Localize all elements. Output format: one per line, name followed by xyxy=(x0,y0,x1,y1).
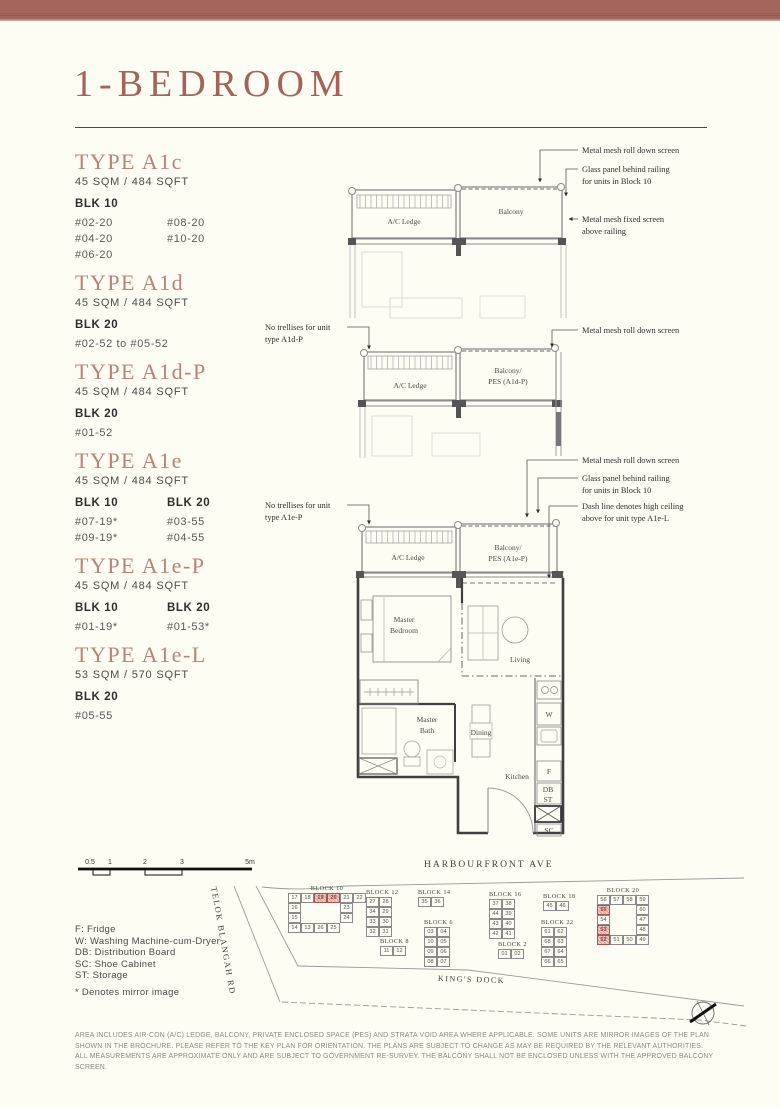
room-label-ac-ledge: A/C Ledge xyxy=(391,553,425,562)
sitemap-block-label: BLOCK 6 xyxy=(424,919,450,926)
sitemap-row: 171819202122 xyxy=(288,893,366,903)
sitemap-unit: 26 xyxy=(314,923,327,933)
sitemap-row: 5348 xyxy=(597,925,649,935)
sitemap-unit: 32 xyxy=(366,927,379,937)
sitemap-row: 4546 xyxy=(543,901,569,911)
room-label-dining: Dining xyxy=(471,728,492,737)
sitemap-unit: 35 xyxy=(418,897,431,907)
sitemap-unit: 60 xyxy=(636,905,649,915)
sitemap-unit: 51 xyxy=(610,935,623,945)
sitemap-unit: 63 xyxy=(554,937,567,947)
sitemap-row: 3231 xyxy=(366,927,392,937)
sitemap-unit: 50 xyxy=(623,935,636,945)
mirror-image-note: * Denotes mirror image xyxy=(75,987,179,998)
sitemap-unit: 28 xyxy=(379,897,392,907)
sitemap-unit: 64 xyxy=(554,947,567,957)
sitemap-block-label: BLOCK 22 xyxy=(541,919,567,926)
sitemap-unit: 46 xyxy=(556,901,569,911)
legend: F: FridgeW: Washing Machine-cum-DryerDB:… xyxy=(75,924,220,982)
room-label-master-bath-2: Bath xyxy=(420,726,434,735)
sitemap-row: 0807 xyxy=(424,957,450,967)
sitemap-unit: 23 xyxy=(340,903,353,913)
sitemap-unit: 65 xyxy=(554,957,567,967)
sitemap-block-label: BLOCK 16 xyxy=(489,891,515,898)
legend-item: F: Fridge xyxy=(75,924,220,936)
annotation-glass-panel-2: for units in Block 10 xyxy=(582,177,651,186)
label-fridge: F xyxy=(547,767,551,776)
road-label-harbourfront-ave: HARBOURFRONT AVE xyxy=(424,860,554,870)
room-label-balcony-pes: Balcony/ xyxy=(494,366,522,375)
sitemap-unit: 39 xyxy=(502,909,515,919)
sitemap-unit: 14 xyxy=(288,923,301,933)
sitemap-row: 3536 xyxy=(418,897,444,907)
sitemap-block-18: BLOCK 184546 xyxy=(543,893,569,911)
sitemap-unit: 58 xyxy=(623,895,636,905)
sitemap-unit: 45 xyxy=(543,901,556,911)
sitemap-block-22: BLOCK 226162686367646665 xyxy=(541,919,567,967)
room-label-balcony-pes-2: PES (A1d-P) xyxy=(488,377,528,386)
sitemap-unit: 62 xyxy=(554,927,567,937)
sitemap-unit: 20 xyxy=(327,893,340,903)
sitemap-block-2: BLOCK 20102 xyxy=(498,941,524,959)
sitemap-unit: 34 xyxy=(366,907,379,917)
floor-plan-a1c: A/C Ledge Balcony Metal mesh roll down s… xyxy=(348,146,680,318)
sitemap-row: 5560 xyxy=(597,905,649,915)
sitemap-unit: 04 xyxy=(437,927,450,937)
sitemap-unit: 49 xyxy=(636,935,649,945)
annotation-no-trellises: No trellises for unit xyxy=(265,501,331,510)
sitemap-unit: 31 xyxy=(379,927,392,937)
room-label-master-bedroom-2: Bedroom xyxy=(390,626,418,635)
annotation-roll-down-screen: Metal mesh roll down screen xyxy=(582,146,680,155)
sitemap-unit: 57 xyxy=(610,895,623,905)
sitemap-unit: 53 xyxy=(597,925,610,935)
sitemap-row: 2728 xyxy=(366,897,392,907)
sitemap-unit: 15 xyxy=(288,913,301,923)
sitemap-unit: 11 xyxy=(380,946,393,956)
scale-bar: 0.5 1 2 3 5m xyxy=(78,859,255,875)
sitemap-block-label: BLOCK 12 xyxy=(366,889,392,896)
legend-item: W: Washing Machine-cum-Dryer xyxy=(75,936,220,948)
sitemap-unit: 61 xyxy=(541,927,554,937)
sitemap-unit: 59 xyxy=(636,895,649,905)
sitemap-unit: 43 xyxy=(489,919,502,929)
sitemap-unit: 30 xyxy=(379,917,392,927)
sitemap-unit: 48 xyxy=(636,925,649,935)
sitemap-block-12: BLOCK 122728342933303231 xyxy=(366,889,392,937)
annotation-no-trellises-2: type A1d-P xyxy=(265,335,303,344)
sitemap-unit: 54 xyxy=(597,915,610,925)
label-sc: SC xyxy=(544,826,553,835)
sitemap-row: 1524 xyxy=(288,913,366,923)
sitemap-block-label: BLOCK 20 xyxy=(597,887,649,894)
floor-plan-a1e: A/C Ledge Balcony/ PES (A1e-P) Master Be… xyxy=(265,456,684,836)
sitemap-block-14: BLOCK 143536 xyxy=(418,889,444,907)
room-label-living: Living xyxy=(510,655,530,664)
sitemap-unit: 22 xyxy=(353,893,366,903)
sitemap-unit: 03 xyxy=(424,927,437,937)
scale-tick-5m: 5m xyxy=(245,859,255,866)
room-label-balcony-pes-2: PES (A1e-P) xyxy=(489,554,528,563)
sitemap-unit: 01 xyxy=(498,949,511,959)
sitemap-row: 52515049 xyxy=(597,935,649,945)
sitemap-unit: 29 xyxy=(379,907,392,917)
label-washer: W xyxy=(545,710,553,719)
sitemap-unit: 36 xyxy=(431,897,444,907)
sitemap-unit: 24 xyxy=(340,913,353,923)
sitemap-unit: 07 xyxy=(437,957,450,967)
room-label-balcony: Balcony xyxy=(499,207,524,216)
annotation-roll-down-screen: Metal mesh roll down screen xyxy=(582,326,680,335)
annotation-glass-panel-2: for units in Block 10 xyxy=(582,486,651,495)
sitemap-row: 4241 xyxy=(489,929,515,939)
annotation-high-ceiling: Dash line denotes high ceiling xyxy=(582,502,684,511)
sitemap-unit: 05 xyxy=(437,937,450,947)
sitemap-unit: 10 xyxy=(424,937,437,947)
room-label-balcony-pes: Balcony/ xyxy=(494,543,522,552)
annotation-fixed-screen-2: above railing xyxy=(582,227,627,236)
sitemap-unit: 47 xyxy=(636,915,649,925)
sitemap-row: 3429 xyxy=(366,907,392,917)
sitemap-block-label: BLOCK 2 xyxy=(498,941,524,948)
sitemap-unit: 40 xyxy=(502,919,515,929)
sitemap-row: 0906 xyxy=(424,947,450,957)
sitemap-row: 0102 xyxy=(498,949,524,959)
legend-item: DB: Distribution Board xyxy=(75,947,220,959)
scale-tick-05: 0.5 xyxy=(85,859,95,866)
label-st: ST xyxy=(544,795,553,804)
sitemap-unit: 25 xyxy=(327,923,340,933)
brochure-page: 1-BEDROOM TYPE A1c45 SQM / 484 SQFTBLK 1… xyxy=(0,0,780,1107)
sitemap-block-16: BLOCK 163738443943404241 xyxy=(489,891,515,939)
sitemap-block-label: BLOCK 14 xyxy=(418,889,444,896)
sitemap-row: 6764 xyxy=(541,947,567,957)
sitemap-row: 3330 xyxy=(366,917,392,927)
sitemap-unit: 09 xyxy=(424,947,437,957)
sitemap-unit: 21 xyxy=(340,893,353,903)
sitemap-unit: 16 xyxy=(288,903,301,913)
annotation-roll-down-screen: Metal mesh roll down screen xyxy=(582,456,680,465)
sitemap-unit: 02 xyxy=(511,949,524,959)
sitemap-row: 14132625 xyxy=(288,923,366,933)
sitemap-unit: 44 xyxy=(489,909,502,919)
sitemap-unit: 13 xyxy=(301,923,314,933)
room-label-master-bath: Master xyxy=(417,715,438,724)
label-db: DB xyxy=(543,785,553,794)
sitemap-row: 1112 xyxy=(380,946,406,956)
room-label-master-bedroom: Master xyxy=(394,615,415,624)
sitemap-unit: 27 xyxy=(366,897,379,907)
sitemap-block-8: BLOCK 81112 xyxy=(380,938,406,956)
sitemap-block-20: BLOCK 205657585955605447534852515049 xyxy=(597,887,649,945)
scale-tick-3: 3 xyxy=(180,859,184,866)
sitemap-block-label: BLOCK 10 xyxy=(288,885,366,892)
sitemap-unit: 38 xyxy=(502,899,515,909)
legend-item: SC: Shoe Cabinet xyxy=(75,959,220,971)
sitemap-unit: 42 xyxy=(489,929,502,939)
legend-item: ST: Storage xyxy=(75,970,220,982)
sitemap-unit: 52 xyxy=(597,935,610,945)
sitemap-block-label: BLOCK 8 xyxy=(380,938,406,945)
sitemap-unit: 18 xyxy=(301,893,314,903)
sitemap-unit: 19 xyxy=(314,893,327,903)
sitemap-unit: 68 xyxy=(541,937,554,947)
sitemap-unit: 66 xyxy=(541,957,554,967)
sitemap-unit: 67 xyxy=(541,947,554,957)
annotation-high-ceiling-2: above for unit type A1e-L xyxy=(582,514,669,523)
sitemap-block-label: BLOCK 18 xyxy=(543,893,569,900)
annotation-no-trellises: No trellises for unit xyxy=(265,323,331,332)
sitemap-row: 0304 xyxy=(424,927,450,937)
sitemap-row: 4439 xyxy=(489,909,515,919)
room-label-ac-ledge: A/C Ledge xyxy=(387,217,421,226)
sitemap-unit: 06 xyxy=(437,947,450,957)
sitemap-row: 6665 xyxy=(541,957,567,967)
sitemap-block-10: BLOCK 101718192021221623152414132625 xyxy=(288,885,366,933)
sitemap-row: 3738 xyxy=(489,899,515,909)
sitemap-unit: 41 xyxy=(502,929,515,939)
sitemap-unit: 08 xyxy=(424,957,437,967)
annotation-fixed-screen: Metal mesh fixed screen xyxy=(582,215,665,224)
sitemap-unit: 55 xyxy=(597,905,610,915)
sitemap-row: 4340 xyxy=(489,919,515,929)
sitemap-row: 1005 xyxy=(424,937,450,947)
room-label-ac-ledge: A/C Ledge xyxy=(393,381,427,390)
sitemap-unit: 17 xyxy=(288,893,301,903)
compass-icon xyxy=(690,1001,716,1025)
annotation-glass-panel: Glass panel behind railing xyxy=(582,474,670,483)
sitemap-unit: 56 xyxy=(597,895,610,905)
sitemap-row: 56575859 xyxy=(597,895,649,905)
floor-plan-a1d: A/C Ledge Balcony/ PES (A1d-P) No trelli… xyxy=(265,323,680,458)
sitemap-unit: 12 xyxy=(393,946,406,956)
annotation-glass-panel: Glass panel behind railing xyxy=(582,165,670,174)
sitemap-row: 5447 xyxy=(597,915,649,925)
annotation-no-trellises-2: type A1e-P xyxy=(265,513,303,522)
room-label-kitchen: Kitchen xyxy=(505,772,529,781)
sitemap-row: 6863 xyxy=(541,937,567,947)
sitemap-row: 1623 xyxy=(288,903,366,913)
sitemap-unit: 37 xyxy=(489,899,502,909)
disclaimer-text: AREA INCLUDES AIR-CON (A/C) LEDGE, BALCO… xyxy=(75,1031,715,1073)
sitemap-unit: 33 xyxy=(366,917,379,927)
scale-tick-2: 2 xyxy=(143,859,147,866)
sitemap-block-6: BLOCK 60304100509060807 xyxy=(424,919,450,967)
sitemap-row: 6162 xyxy=(541,927,567,937)
scale-tick-1: 1 xyxy=(108,859,112,866)
